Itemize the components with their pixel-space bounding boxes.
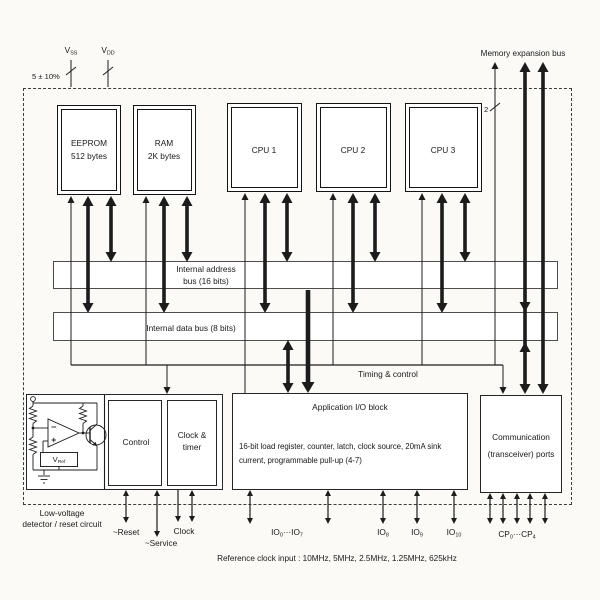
application-io-desc-line1: 16-bit load register, counter, latch, cl… — [239, 442, 441, 452]
eeprom-block — [57, 105, 121, 195]
vref-label: VRef — [53, 455, 66, 466]
timing-control-label: Timing & control — [358, 369, 418, 379]
ram-label-line2: 2K bytes — [148, 151, 180, 161]
io8-label: IO8 — [377, 527, 389, 539]
cpu2-label: CPU 2 — [341, 145, 365, 155]
io0-io7-label: IO0···IO7 — [271, 527, 303, 539]
memory-expansion-bus-label: Memory expansion bus — [481, 49, 566, 59]
application-io-title: Application I/O block — [312, 402, 388, 412]
eeprom-label-line2: 512 bytes — [71, 151, 107, 161]
clock-signal-label: Clock — [174, 526, 195, 536]
eeprom-label-line1: EEPROM — [71, 138, 107, 148]
eeprom-block-inner — [61, 109, 117, 191]
application-io-desc-line2: current, programmable pull-up (4-7) — [239, 456, 362, 466]
communication-label-line2: (transceiver) ports — [488, 449, 555, 459]
address-bus-label-line1: Internal address — [176, 264, 236, 274]
ram-label-line1: RAM — [155, 138, 173, 148]
data-bus-box — [53, 312, 558, 341]
lvd-caption-line1: Low-voltage — [40, 508, 85, 518]
io9-label: IO9 — [411, 527, 423, 539]
cp0-cp4-label: CP0···CP4 — [498, 529, 535, 541]
address-bus-label-line2: bus (16 bits) — [183, 276, 229, 286]
control-label: Control — [123, 437, 150, 447]
vss-pin-label: VSS — [65, 45, 78, 57]
service-signal-label: ~Service — [145, 538, 178, 548]
cpu3-label: CPU 3 — [431, 145, 455, 155]
communication-ports-block — [480, 395, 562, 493]
ram-block — [133, 105, 196, 195]
communication-label-line1: Communication — [492, 432, 550, 442]
address-bus-box — [53, 261, 558, 289]
data-bus-label: Internal data bus (8 bits) — [146, 323, 235, 333]
io10-label: IO10 — [447, 527, 462, 539]
vdd-pin-label: VDD — [101, 45, 114, 57]
clock-timer-label-line2: timer — [183, 442, 201, 452]
reference-clock-caption: Reference clock input : 10MHz, 5MHz, 2.5… — [217, 554, 457, 564]
lvd-caption-line2: detector / reset circuit — [22, 519, 101, 529]
ram-block-inner — [137, 109, 192, 191]
reset-signal-label: ~Reset — [113, 527, 140, 537]
clock-timer-label-line1: Clock & — [178, 430, 207, 440]
diagram-canvas — [0, 0, 600, 600]
supply-tolerance-label: 5 ± 10% — [32, 72, 60, 81]
bus-width-marker: 2 — [484, 105, 488, 114]
cpu1-label: CPU 1 — [252, 145, 276, 155]
